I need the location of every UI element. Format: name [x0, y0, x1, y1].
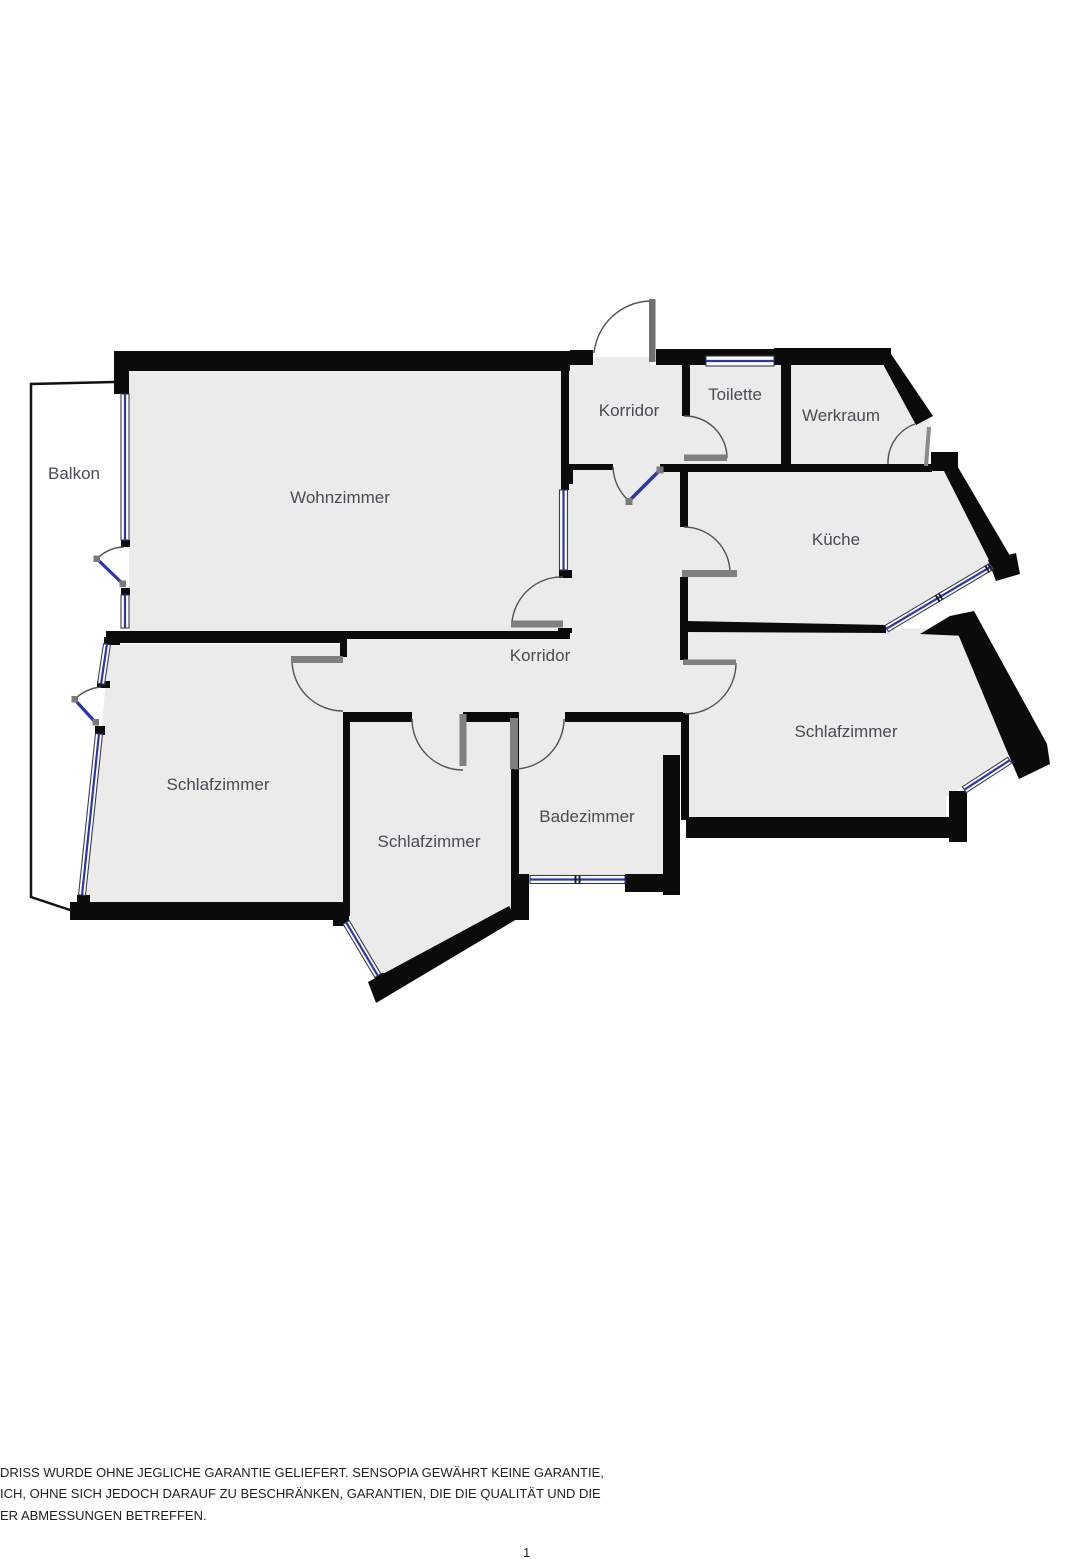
svg-text:Schlafzimmer: Schlafzimmer — [378, 832, 481, 851]
svg-text:Werkraum: Werkraum — [802, 406, 880, 425]
svg-text:Schlafzimmer: Schlafzimmer — [795, 722, 898, 741]
svg-text:Toilette: Toilette — [708, 385, 762, 404]
svg-text:Wohnzimmer: Wohnzimmer — [290, 488, 390, 507]
svg-text:Korridor: Korridor — [599, 401, 660, 420]
svg-text:Schlafzimmer: Schlafzimmer — [167, 775, 270, 794]
svg-text:Küche: Küche — [812, 530, 860, 549]
svg-text:Balkon: Balkon — [48, 464, 100, 483]
svg-text:Korridor: Korridor — [510, 646, 571, 665]
svg-text:Badezimmer: Badezimmer — [539, 807, 635, 826]
